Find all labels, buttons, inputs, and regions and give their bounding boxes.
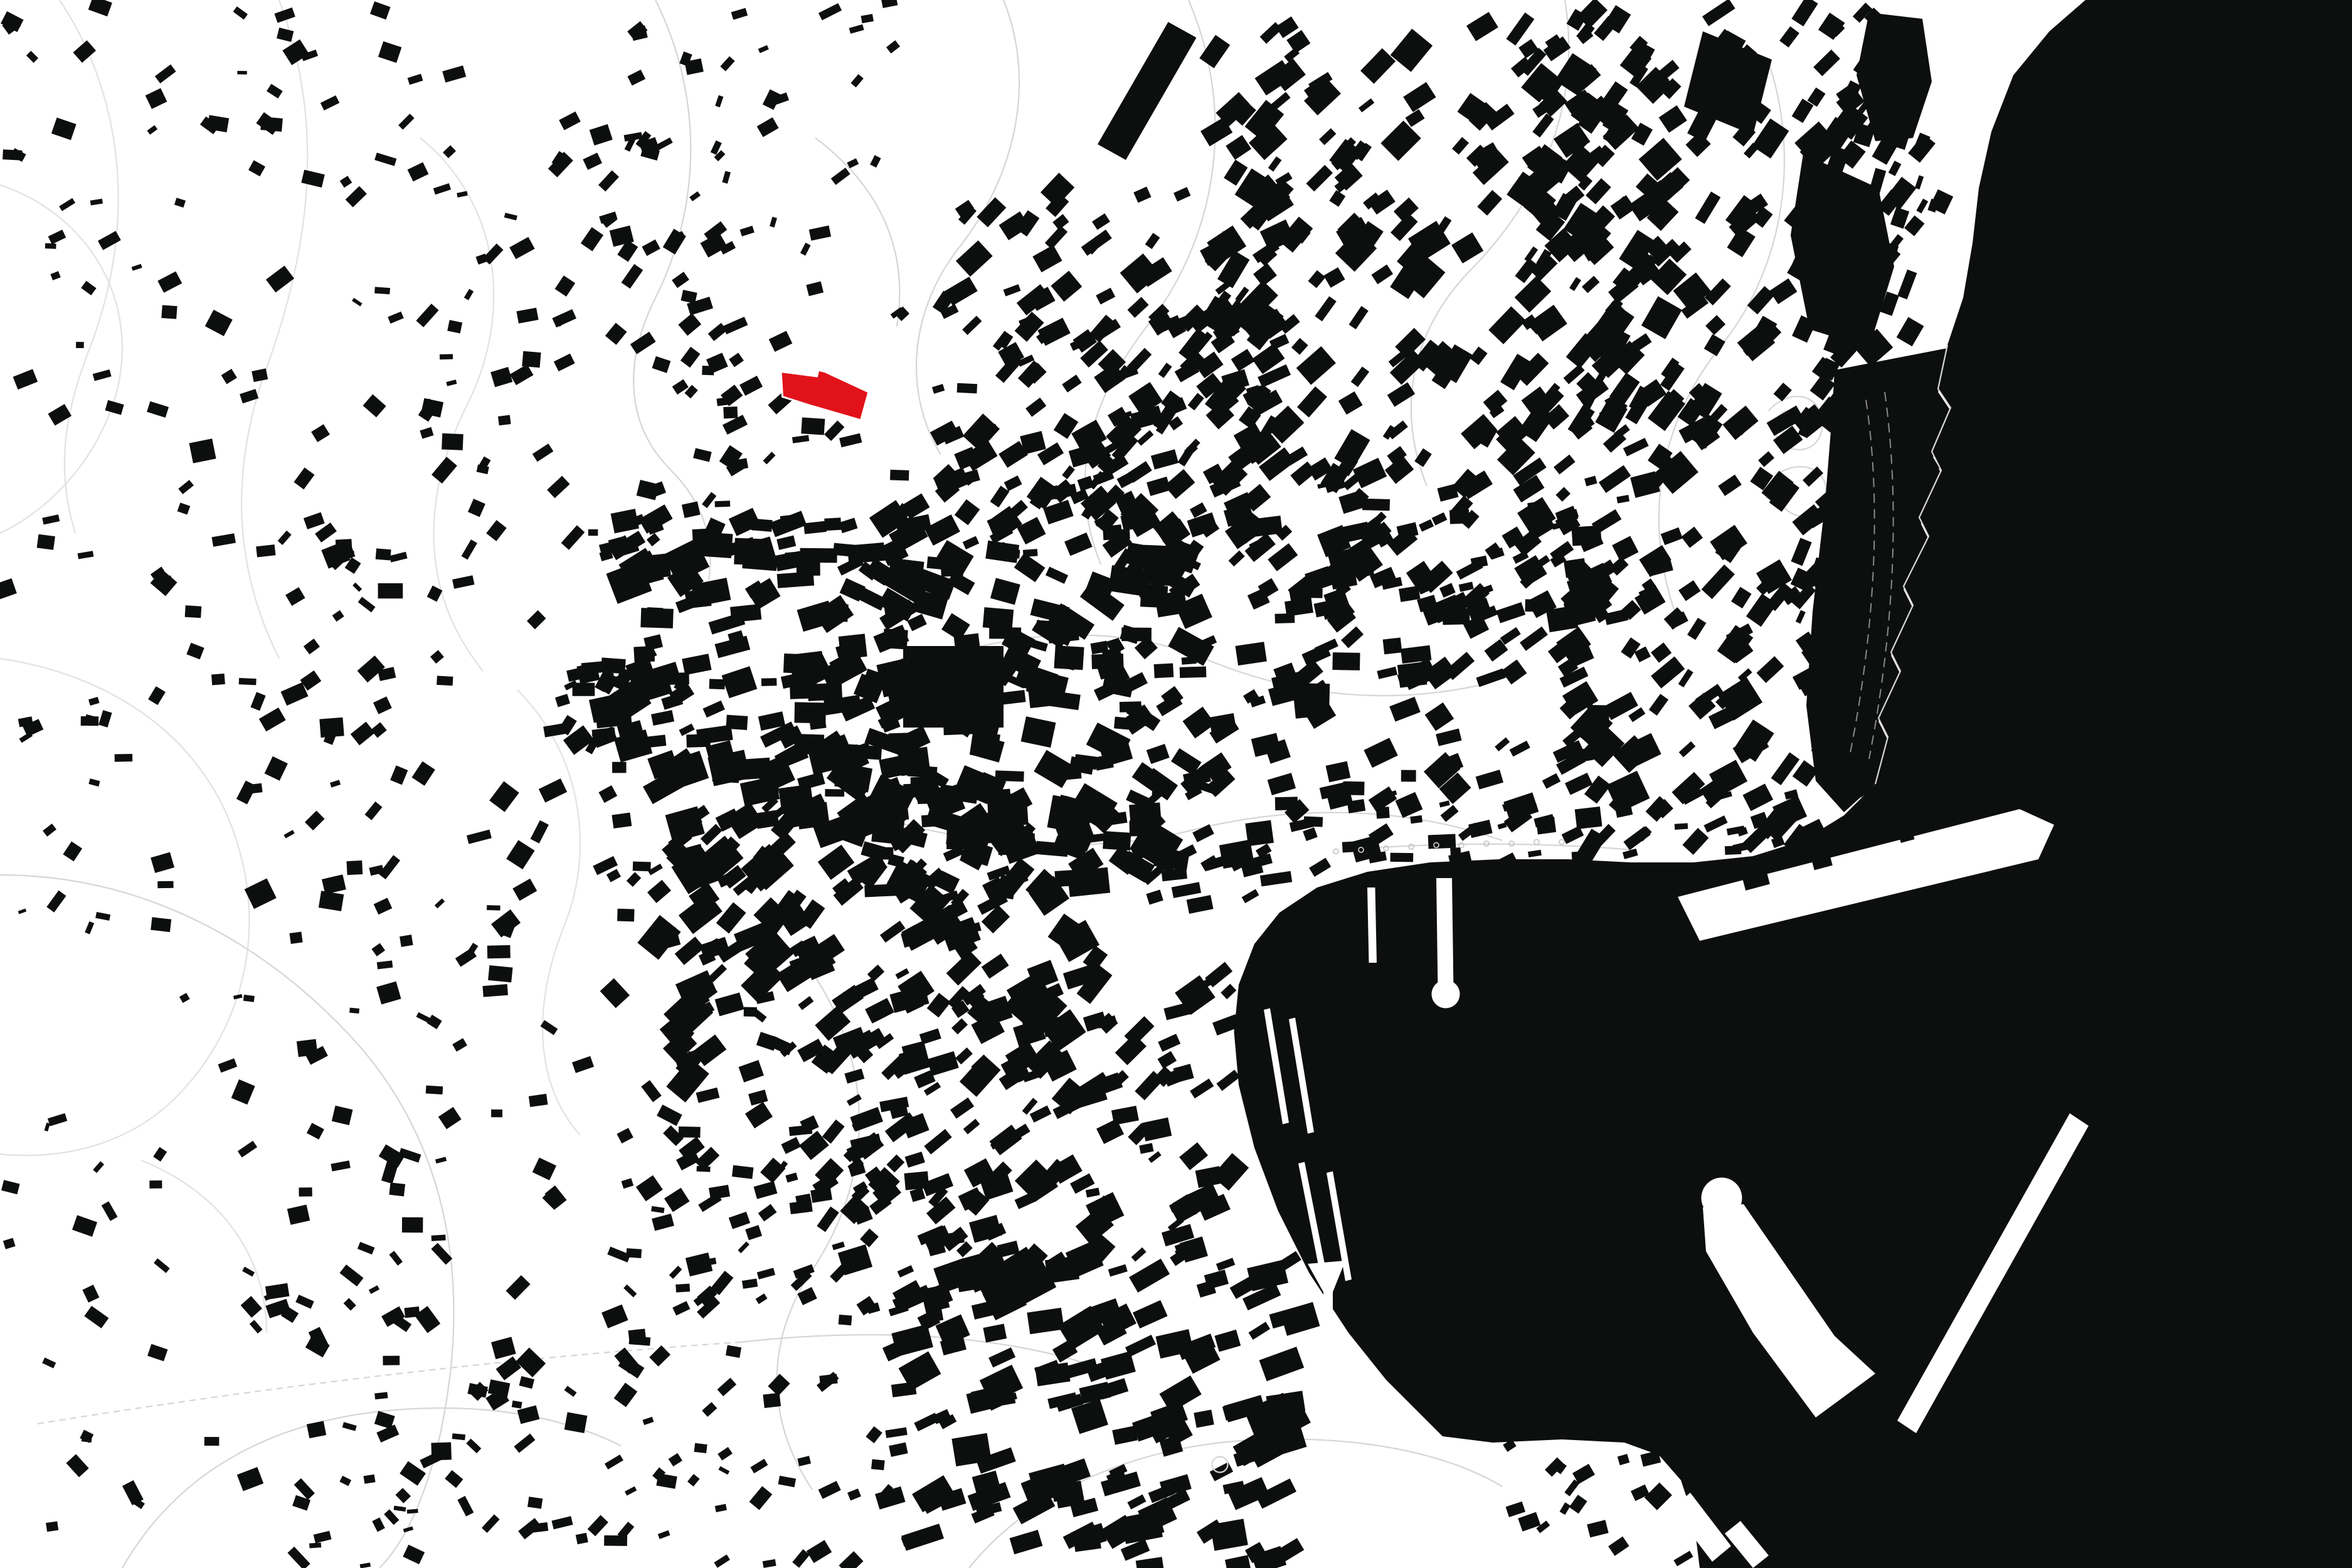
hammerhead-pier bbox=[1436, 878, 1454, 991]
y-pier-round-head bbox=[1702, 1178, 1742, 1219]
landmark-building bbox=[903, 646, 1004, 728]
map-svg bbox=[0, 0, 2352, 1568]
hammerhead-pier-bulb bbox=[1432, 980, 1460, 1009]
figure-ground-map-viewport bbox=[0, 0, 2352, 1568]
thin-pier bbox=[1367, 887, 1377, 963]
